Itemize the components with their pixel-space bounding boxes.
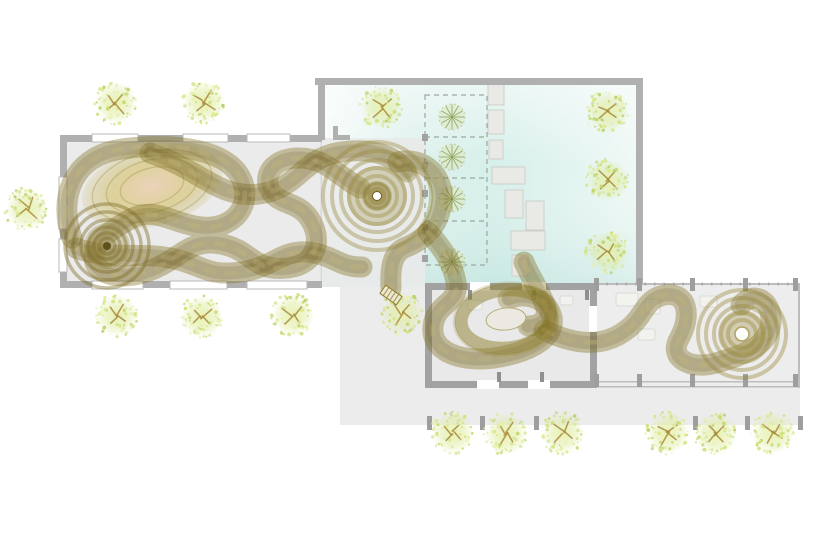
tree-canopy-dot xyxy=(584,249,588,253)
tree-canopy-dot xyxy=(111,116,114,119)
tree-canopy-dot xyxy=(501,425,503,427)
tree-canopy-dot xyxy=(19,200,22,203)
tree-canopy-dot xyxy=(486,432,488,434)
tree-canopy-dot xyxy=(655,431,657,433)
tree-canopy-dot xyxy=(573,414,577,418)
tree-canopy-dot xyxy=(23,196,25,198)
tree-canopy-dot xyxy=(11,192,13,194)
tree-canopy-dot xyxy=(791,431,795,435)
column xyxy=(427,416,432,430)
tree-canopy-dot xyxy=(594,97,597,100)
tree-canopy-dot xyxy=(596,188,598,190)
tree-canopy-dot xyxy=(122,116,123,117)
tree-canopy-dot xyxy=(277,319,279,321)
tree-canopy-dot xyxy=(272,305,274,307)
tree-canopy-dot xyxy=(287,296,289,298)
tree-canopy-dot xyxy=(95,315,97,317)
tree-canopy-dot xyxy=(786,442,790,446)
planting-strip-post xyxy=(422,255,428,262)
tree-canopy-dot xyxy=(608,92,610,94)
tree-canopy-dot xyxy=(608,100,610,102)
tree-canopy-dot xyxy=(218,96,221,99)
tree-canopy-dot xyxy=(394,121,396,123)
tree-canopy-dot xyxy=(189,113,190,114)
tree-canopy-dot xyxy=(206,325,208,327)
tree-canopy-dot xyxy=(605,267,607,269)
tree-canopy-dot xyxy=(200,120,202,122)
tree-canopy-dot xyxy=(209,103,212,106)
tree-canopy-dot xyxy=(199,333,201,335)
vortex-nest-center xyxy=(103,242,111,250)
tree-canopy-dot xyxy=(723,427,725,429)
tree-canopy-dot xyxy=(496,435,498,437)
tree-canopy-dot xyxy=(116,114,119,117)
tree-canopy-dot xyxy=(671,453,673,455)
tree-canopy-dot xyxy=(305,304,308,307)
tree-canopy-dot xyxy=(612,238,616,242)
tree-canopy-dot xyxy=(217,99,220,102)
tree-canopy-dot xyxy=(541,426,543,428)
tree-canopy-dot xyxy=(565,442,567,444)
tree-canopy-dot xyxy=(457,415,459,417)
small-tree xyxy=(439,144,465,170)
tree-canopy-dot xyxy=(593,235,596,238)
tree-canopy-dot xyxy=(219,323,221,325)
tree-canopy-dot xyxy=(111,300,115,304)
tree-canopy-dot xyxy=(449,444,451,446)
tree-canopy-dot xyxy=(215,324,217,326)
tree-canopy-dot xyxy=(607,259,610,262)
tree-canopy-dot xyxy=(507,423,509,425)
tree-canopy-dot xyxy=(456,423,458,425)
tree-canopy-dot xyxy=(547,439,551,443)
tree-canopy-dot xyxy=(601,240,605,244)
tree-canopy-dot xyxy=(590,95,594,99)
tree-canopy-dot xyxy=(119,123,121,125)
tree-canopy-dot xyxy=(588,109,591,112)
tree-canopy-dot xyxy=(194,88,197,91)
tree-canopy-dot xyxy=(16,212,20,216)
tree-canopy-dot xyxy=(17,225,19,227)
tree-canopy-dot xyxy=(620,173,622,175)
tree-canopy-dot xyxy=(698,424,701,427)
tree-canopy-dot xyxy=(285,296,287,298)
tree-canopy-dot xyxy=(221,104,225,108)
tree-canopy-dot xyxy=(380,312,383,315)
tree-canopy-dot xyxy=(549,448,551,450)
swirl-nest-eye xyxy=(735,327,749,341)
tree-canopy-dot xyxy=(501,444,503,446)
tree-canopy-dot xyxy=(767,415,770,418)
tree-canopy-dot xyxy=(780,420,783,423)
tree-canopy-dot xyxy=(576,429,580,433)
tree-canopy-dot xyxy=(548,417,551,420)
tree-canopy-dot xyxy=(451,419,453,421)
tree-canopy-dot xyxy=(215,93,217,95)
stepping-stone xyxy=(488,110,504,134)
tree-canopy-dot xyxy=(186,299,190,303)
tree-canopy-dot xyxy=(593,252,596,255)
tree-canopy-dot xyxy=(406,331,409,334)
tree-canopy-dot xyxy=(275,322,277,324)
tree-canopy-dot xyxy=(673,419,676,422)
tree-canopy-dot xyxy=(19,195,21,197)
tree-canopy-dot xyxy=(650,426,652,428)
tree-canopy-dot xyxy=(601,131,603,133)
tree-canopy-dot xyxy=(674,434,675,435)
tree-canopy-dot xyxy=(457,451,460,454)
tree-canopy-dot xyxy=(364,119,367,122)
tree-canopy-dot xyxy=(382,320,384,322)
tree-canopy-dot xyxy=(555,411,558,414)
tree-canopy-dot xyxy=(16,192,18,194)
tree-canopy-dot xyxy=(20,187,23,190)
tree-canopy-dot xyxy=(490,418,493,421)
tree-canopy-dot xyxy=(451,446,454,449)
tree-canopy-dot xyxy=(396,103,399,106)
stepping-stone xyxy=(505,190,523,218)
tree-canopy-dot xyxy=(591,263,595,267)
tree-canopy-dot xyxy=(3,211,7,215)
tree xyxy=(95,294,138,338)
tree-canopy-dot xyxy=(366,102,369,105)
tree-canopy-dot xyxy=(15,216,17,218)
tree-canopy-dot xyxy=(209,91,213,95)
tree-canopy-dot xyxy=(131,324,134,327)
tree-canopy-dot xyxy=(623,122,625,124)
tree-canopy-dot xyxy=(394,322,398,326)
tree-canopy-dot xyxy=(620,102,623,105)
tree-canopy-dot xyxy=(617,249,620,252)
tree-canopy-dot xyxy=(597,177,599,179)
tree-canopy-dot xyxy=(216,303,218,305)
tree-canopy-dot xyxy=(392,306,394,308)
tree-canopy-dot xyxy=(274,301,278,305)
tree-canopy-dot xyxy=(437,423,440,426)
column xyxy=(594,278,599,291)
tree-canopy-dot xyxy=(410,297,413,300)
tree-canopy-dot xyxy=(651,447,654,450)
tree-canopy-dot xyxy=(96,318,98,320)
south-hall-wall-bottom xyxy=(425,381,597,388)
tree-canopy-dot xyxy=(759,417,761,419)
tree-canopy-dot xyxy=(100,310,103,313)
tree-canopy-dot xyxy=(510,412,513,415)
tree-canopy-dot xyxy=(396,119,398,121)
tree-canopy-dot xyxy=(39,209,41,211)
tree-canopy-dot xyxy=(100,306,102,308)
tree-canopy-dot xyxy=(491,426,493,428)
tree-canopy-dot xyxy=(367,92,370,95)
tree-canopy-dot xyxy=(103,326,107,330)
tree-canopy-dot xyxy=(585,176,587,178)
tree-canopy-dot xyxy=(696,430,699,433)
tree-canopy-dot xyxy=(462,422,464,424)
tree-canopy-dot xyxy=(697,435,700,438)
tree-canopy-dot xyxy=(399,104,400,105)
tree-canopy-dot xyxy=(559,447,563,451)
tree-canopy-dot xyxy=(717,415,720,418)
tree-canopy-dot xyxy=(116,108,118,110)
tree-canopy-dot xyxy=(509,419,512,422)
tree-canopy-dot xyxy=(96,321,99,324)
small-tree-trunk xyxy=(450,115,453,118)
tree-canopy-dot xyxy=(383,307,386,310)
column xyxy=(637,278,642,291)
tree-canopy-dot xyxy=(592,189,595,192)
tree-canopy-dot xyxy=(188,316,191,319)
tree-canopy-dot xyxy=(40,215,42,217)
tree-canopy-dot xyxy=(101,100,104,103)
tree-canopy-dot xyxy=(377,120,379,122)
tree-canopy-dot xyxy=(378,93,381,96)
tree-canopy-dot xyxy=(586,173,589,176)
courtyard-wall-top xyxy=(315,78,643,85)
tree-canopy-dot xyxy=(443,437,445,439)
tree-canopy-dot xyxy=(723,445,727,449)
tree-canopy-dot xyxy=(189,320,191,322)
tree-canopy-dot xyxy=(192,92,195,95)
tree-canopy-dot xyxy=(204,117,206,119)
tree-canopy-dot xyxy=(581,431,583,433)
tree-canopy-dot xyxy=(124,321,126,323)
tree-canopy-dot xyxy=(595,161,598,164)
tree-canopy-dot xyxy=(695,441,697,443)
tree-canopy-dot xyxy=(96,113,99,116)
tree-canopy-dot xyxy=(33,219,36,222)
tree-canopy-dot xyxy=(211,114,215,118)
tree-canopy-dot xyxy=(602,191,604,193)
tree-canopy-dot xyxy=(720,447,723,450)
tree-canopy-dot xyxy=(728,428,731,431)
column xyxy=(745,416,750,430)
door-gap xyxy=(477,380,499,389)
tree-canopy-dot xyxy=(385,97,388,100)
tree-canopy-dot xyxy=(605,92,606,93)
tree-canopy-dot xyxy=(617,243,620,246)
tree-canopy-dot xyxy=(701,443,704,446)
tree-canopy-dot xyxy=(607,236,610,239)
tree-canopy-dot xyxy=(406,296,409,299)
column xyxy=(534,416,539,430)
tree-canopy-dot xyxy=(104,308,108,312)
tree-canopy-dot xyxy=(441,427,444,430)
tree-canopy-dot xyxy=(279,296,282,299)
tree-canopy-dot xyxy=(218,107,220,109)
tree-canopy-dot xyxy=(624,239,627,242)
tree-canopy-dot xyxy=(598,93,602,97)
tree-canopy-dot xyxy=(545,446,547,448)
tree-canopy-dot xyxy=(381,123,384,126)
tree-canopy-dot xyxy=(712,442,714,444)
tree-canopy-dot xyxy=(547,435,549,437)
tree-canopy-dot xyxy=(41,216,44,219)
tree-canopy-dot xyxy=(388,320,391,323)
tree-canopy-dot xyxy=(561,452,564,455)
tree-canopy-dot xyxy=(602,263,605,266)
tree-canopy-dot xyxy=(292,332,294,334)
tree-canopy-dot xyxy=(114,91,116,93)
tree-canopy-dot xyxy=(207,302,210,305)
tree-canopy-dot xyxy=(600,125,603,128)
tree-canopy-dot xyxy=(277,320,279,322)
tree-canopy-dot xyxy=(501,449,503,451)
tree-canopy-dot xyxy=(669,412,672,415)
tree-canopy-dot xyxy=(728,442,731,445)
tree-canopy-dot xyxy=(524,439,526,441)
tree-canopy-dot xyxy=(386,100,388,102)
tree-canopy-dot xyxy=(14,209,17,212)
tree-canopy-dot xyxy=(290,296,293,299)
tree-canopy-dot xyxy=(14,195,17,198)
tree-canopy-dot xyxy=(102,314,104,316)
tree-canopy-dot xyxy=(703,418,706,421)
tree-canopy-dot xyxy=(198,83,201,86)
tree-canopy-dot xyxy=(595,183,597,185)
tree-canopy-dot xyxy=(576,418,579,421)
tree-canopy-dot xyxy=(588,122,590,124)
tree-canopy-dot xyxy=(672,424,674,426)
tree-canopy-dot xyxy=(37,195,39,197)
tree-canopy-dot xyxy=(618,233,620,235)
tree-canopy-dot xyxy=(595,110,597,112)
tree-canopy-dot xyxy=(609,239,611,241)
tree-canopy-dot xyxy=(389,314,391,316)
column xyxy=(594,374,599,387)
tree-canopy-dot xyxy=(109,82,113,86)
tree-canopy-dot xyxy=(43,210,46,213)
tree-canopy-dot xyxy=(30,222,32,224)
tree-canopy-dot xyxy=(191,98,194,101)
tree-canopy-dot xyxy=(491,430,495,434)
tree-canopy-dot xyxy=(114,294,116,296)
tree-canopy-dot xyxy=(109,114,111,116)
stepping-stone xyxy=(488,83,504,105)
tree-canopy-dot xyxy=(665,453,668,456)
tree-canopy-dot xyxy=(304,299,307,302)
tree-canopy-dot xyxy=(668,447,671,450)
tree-canopy-dot xyxy=(522,423,524,425)
tree-canopy-dot xyxy=(406,323,409,326)
tree-canopy-dot xyxy=(448,452,451,455)
window xyxy=(247,281,307,289)
tree-canopy-dot xyxy=(595,173,598,176)
tree-canopy-dot xyxy=(106,94,108,96)
tree-canopy-dot xyxy=(280,331,281,332)
tree-canopy-dot xyxy=(213,88,215,90)
tree-canopy-dot xyxy=(7,211,9,213)
stepping-stone xyxy=(489,140,503,159)
tree-canopy-dot xyxy=(385,120,388,123)
stepping-stone xyxy=(526,201,544,230)
tree-canopy-dot xyxy=(117,91,119,93)
tree-canopy-dot xyxy=(591,172,593,174)
tree-canopy-dot xyxy=(123,323,125,325)
tree-canopy-dot xyxy=(395,93,398,96)
tree-canopy-dot xyxy=(576,437,579,440)
tree-canopy-dot xyxy=(613,260,615,262)
tree-canopy-dot xyxy=(714,422,716,424)
tree-canopy-dot xyxy=(572,443,574,445)
tree-canopy-dot xyxy=(202,328,205,331)
tree-canopy-dot xyxy=(110,123,111,124)
tree-canopy-dot xyxy=(283,322,284,323)
tree-canopy-dot xyxy=(217,110,218,111)
tree-canopy-dot xyxy=(387,126,390,129)
tree-canopy-dot xyxy=(616,183,618,185)
tree-canopy-dot xyxy=(577,441,579,443)
tree-canopy-dot xyxy=(784,432,786,434)
tree-canopy-dot xyxy=(471,432,474,435)
tree-canopy-dot xyxy=(671,441,673,443)
tree-canopy-dot xyxy=(711,424,714,427)
door-jamb xyxy=(540,372,544,382)
tree-canopy-dot xyxy=(374,86,376,88)
tree-canopy-dot xyxy=(307,309,310,312)
tree-canopy-dot xyxy=(609,164,612,167)
tree-canopy-dot xyxy=(601,118,604,121)
tree-canopy-dot xyxy=(732,436,734,438)
tree-canopy-dot xyxy=(622,182,624,184)
tree-canopy-dot xyxy=(102,85,105,88)
tree-canopy-dot xyxy=(435,432,438,435)
tree-canopy-dot xyxy=(397,113,401,117)
tree-canopy-dot xyxy=(499,451,502,454)
tree-canopy-dot xyxy=(283,307,286,310)
tree-canopy-dot xyxy=(37,219,41,223)
tree-canopy-dot xyxy=(449,418,450,419)
tree-canopy-dot xyxy=(41,200,44,203)
tree-canopy-dot xyxy=(514,444,516,446)
tree-canopy-dot xyxy=(694,426,696,428)
colonnade-edge-bottom-outer xyxy=(597,386,800,388)
tree-canopy-dot xyxy=(301,295,305,299)
tree-canopy-dot xyxy=(188,327,190,329)
tree-canopy-dot xyxy=(126,105,128,107)
tree-canopy-dot xyxy=(459,433,461,435)
tree-canopy-dot xyxy=(723,429,726,432)
tree-canopy-dot xyxy=(127,112,129,114)
tree-canopy-dot xyxy=(298,320,301,323)
tree-canopy-dot xyxy=(763,449,766,452)
tree xyxy=(181,81,225,124)
tree-canopy-dot xyxy=(126,116,128,118)
tree-canopy-dot xyxy=(134,98,137,101)
tree-canopy-dot xyxy=(613,192,615,194)
tree-canopy-dot xyxy=(470,426,472,428)
furniture-ghost xyxy=(616,293,638,306)
colonnade-edge-top xyxy=(597,283,800,285)
tree-canopy-dot xyxy=(617,120,621,124)
tree-canopy-dot xyxy=(212,119,214,121)
tree-canopy-dot xyxy=(664,441,666,443)
tree-canopy-dot xyxy=(646,426,649,429)
tree-canopy-dot xyxy=(684,441,688,445)
tree-canopy-dot xyxy=(603,125,606,128)
tree-canopy-dot xyxy=(787,439,790,442)
tree-canopy-dot xyxy=(585,184,588,187)
tree-canopy-dot xyxy=(368,114,370,116)
tree-canopy-dot xyxy=(367,100,369,102)
tree-canopy-dot xyxy=(433,425,436,428)
tree-canopy-dot xyxy=(205,122,208,125)
tree-canopy-dot xyxy=(461,426,463,428)
tree-canopy-dot xyxy=(614,97,617,100)
tree-canopy-dot xyxy=(392,317,395,320)
tree-canopy-dot xyxy=(781,428,784,431)
tree-canopy-dot xyxy=(671,448,673,450)
tree-canopy-dot xyxy=(524,431,527,434)
